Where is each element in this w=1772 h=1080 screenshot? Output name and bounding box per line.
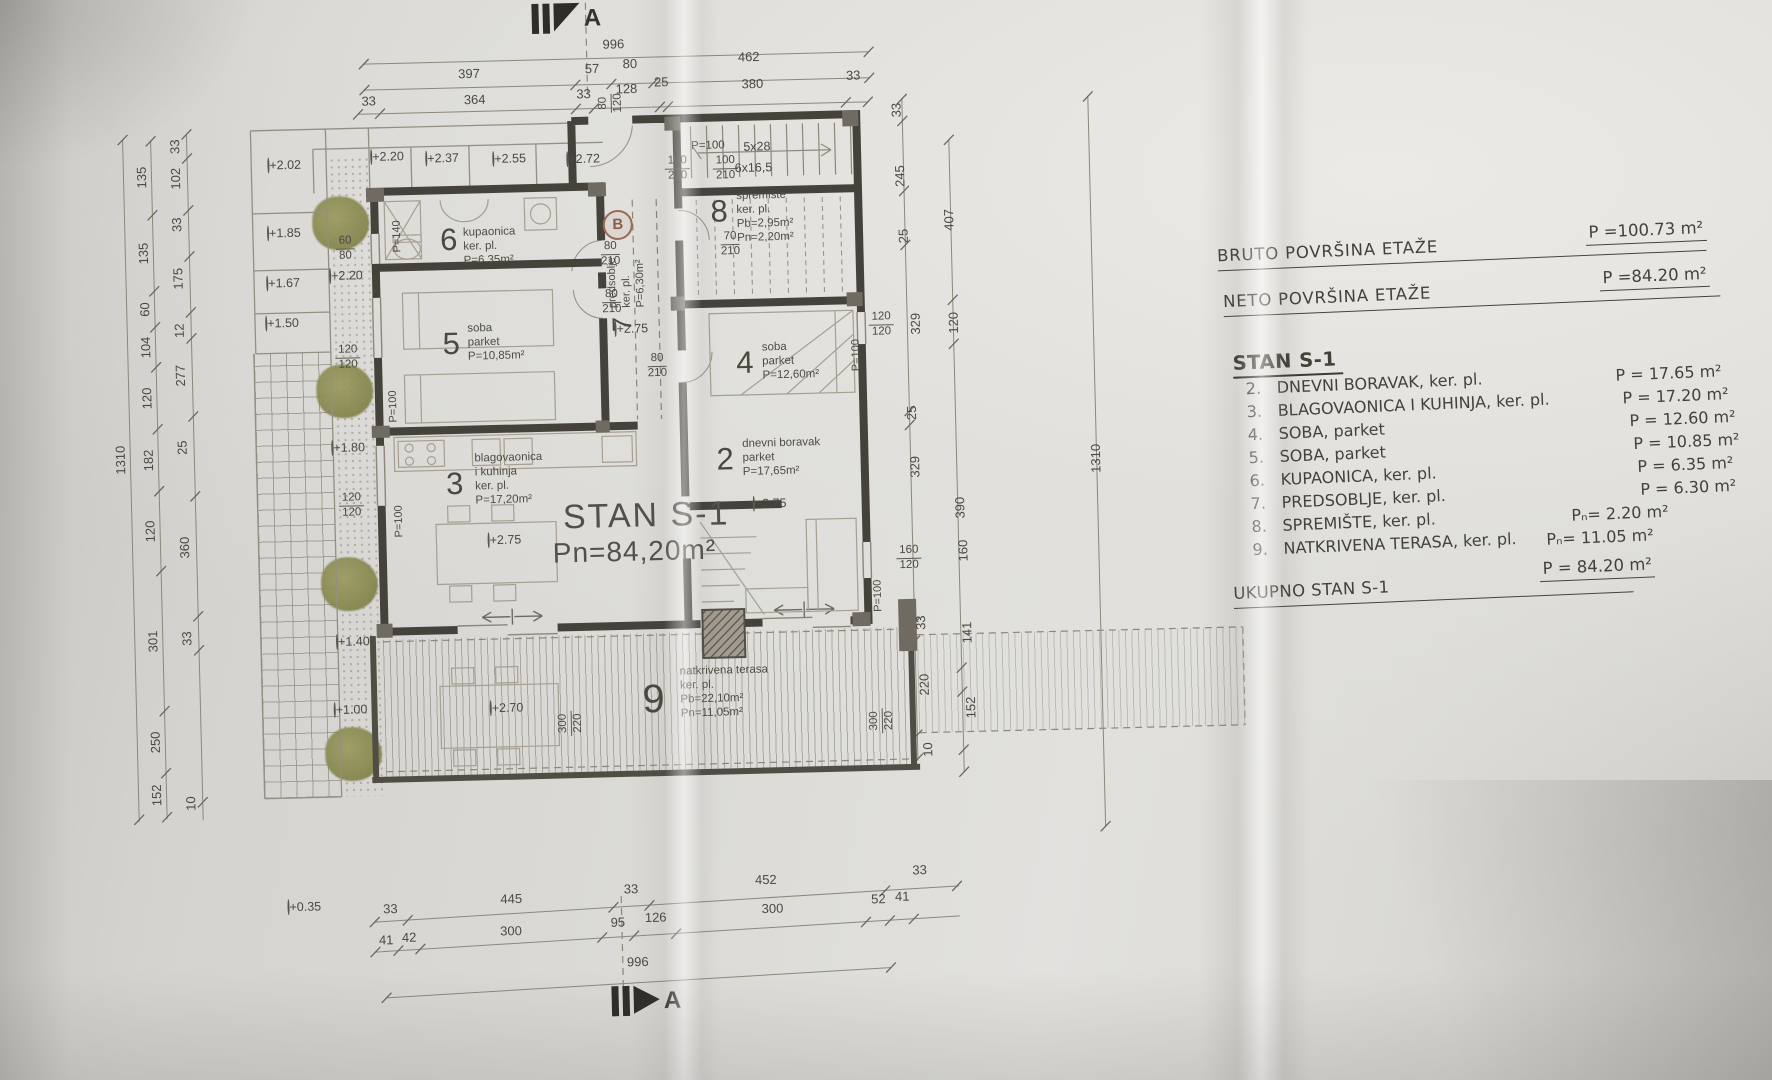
- legend-room-number: 5.: [1248, 448, 1264, 468]
- legend-room-number: 2.: [1245, 379, 1261, 399]
- legend-area: BRUTO POVRŠINA ETAŽE P =100.73 m² NETO P…: [0, 0, 1772, 1080]
- legend-room-label: SOBA, parket: [1279, 442, 1386, 465]
- legend-room-label: PREDSOBLJE, ker. pl.: [1281, 486, 1446, 512]
- legend-room-number: 3.: [1246, 402, 1262, 422]
- legend-room-label: SOBA, parket: [1278, 420, 1385, 443]
- legend-room-label: KUPAONICA, ker. pl.: [1280, 463, 1437, 489]
- legend-room-value: P = 6.30 m²: [1640, 476, 1737, 499]
- legend-neto-value: P =84.20 m²: [1599, 264, 1710, 292]
- legend-room-number: 7.: [1250, 494, 1266, 514]
- legend-room-number: 9.: [1252, 540, 1268, 560]
- legend-apartment-title: STAN S-1: [1232, 347, 1343, 379]
- legend-room-number: 8.: [1251, 517, 1267, 537]
- legend-room-label: NATKRIVENA TERASA, ker. pl.: [1283, 529, 1517, 558]
- legend-bruto-label: BRUTO POVRŠINA ETAŽE: [1217, 237, 1439, 265]
- legend-room-label: SPREMIŠTE, ker. pl.: [1282, 509, 1436, 534]
- legend-room-value: Pₙ= 2.20 m²: [1571, 502, 1669, 525]
- legend-room-value: P = 17.65 m²: [1615, 361, 1722, 384]
- legend-room-value: P = 12.60 m²: [1629, 407, 1736, 430]
- floor-plan-photo: A A B 996 397 57 80 462 33 364 33 128 25…: [0, 0, 1772, 1080]
- legend-room-value: P = 17.20 m²: [1622, 384, 1729, 407]
- legend-room-value: P = 6.35 m²: [1637, 453, 1734, 476]
- legend-room-number: 4.: [1247, 425, 1263, 445]
- legend-neto-label: NETO POVRŠINA ETAŽE: [1223, 283, 1432, 311]
- legend-ukupno-value: P = 84.20 m²: [1539, 554, 1655, 582]
- legend-room-value: Pₙ= 11.05 m²: [1546, 525, 1654, 548]
- section-mark-a-top: A: [583, 4, 601, 32]
- legend-room-value: P = 10.85 m²: [1633, 430, 1740, 453]
- legend-room-number: 6.: [1249, 471, 1265, 491]
- legend-ukupno-label: UKUPNO STAN S-1: [1233, 577, 1390, 603]
